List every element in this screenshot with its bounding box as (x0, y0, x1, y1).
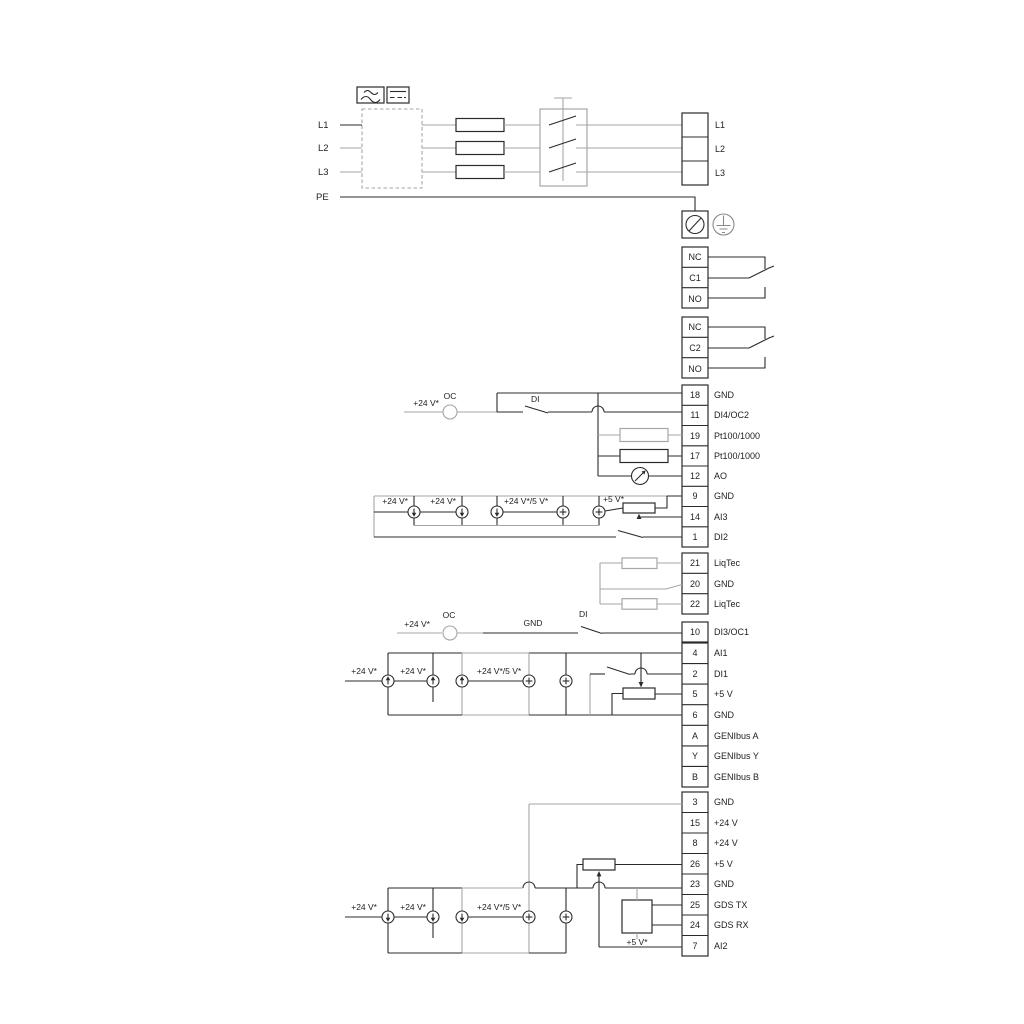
terminal-no: 10 (690, 627, 700, 637)
current-source-up-icon (427, 675, 439, 687)
wire (577, 865, 583, 889)
voltage-source-icon (557, 506, 569, 518)
relay2-block: NC C2 NO (682, 317, 774, 378)
oc-label: OC (444, 391, 457, 401)
terminal-label: GND (714, 797, 735, 807)
potentiometer-icon (623, 688, 655, 699)
terminal-label: AO (714, 471, 727, 481)
resistor-icon (620, 450, 668, 463)
v24-label: +24 V* (351, 902, 377, 912)
earth-ground-icon (713, 214, 734, 235)
relay2-c2: C2 (689, 343, 701, 353)
wiring-diagram: L1 L2 L3 PE (0, 0, 1024, 1024)
terminal-no: 4 (692, 648, 697, 658)
relay1-c1: C1 (689, 273, 701, 283)
current-source-down-icon (427, 911, 439, 923)
voltage-source-icon (560, 911, 572, 923)
current-source-down-icon (491, 506, 503, 518)
wiper-arrow-icon (597, 871, 602, 876)
voltage-source-icon (523, 911, 535, 923)
terminal-no: 22 (690, 599, 700, 609)
terminal-label: +5 V (714, 859, 733, 869)
io-strip-3: 3 GND 15 +24 V 8 +24 V 26 +5 V 23 GND 25… (682, 792, 749, 956)
terminal-no: 21 (690, 558, 700, 568)
terminal-no: 12 (690, 471, 700, 481)
current-source-down-icon (382, 911, 394, 923)
terminal-no: 9 (692, 491, 697, 501)
terminal-label: LiqTec (714, 599, 741, 609)
v24-label: +24 V* (413, 398, 439, 408)
terminal-no: 11 (690, 410, 699, 420)
oc-label: OC (443, 610, 456, 620)
terminal-no: 24 (690, 920, 700, 930)
mains-input-section: L1 L2 L3 PE (316, 87, 695, 211)
gnd-label: GND (524, 618, 543, 628)
terminal-label: DI4/OC2 (714, 410, 749, 420)
terminal-no: 5 (692, 689, 697, 699)
terminal-label: GND (714, 491, 735, 501)
terminal-label: +5 V (714, 689, 733, 699)
resistor-icon (620, 429, 668, 442)
wire (388, 653, 433, 715)
terminal-label: GND (714, 390, 735, 400)
wire-pe (340, 197, 695, 211)
terminal-label: L2 (715, 144, 725, 154)
di2-switch-blade (618, 531, 643, 538)
terminal-no: 7 (692, 941, 697, 951)
fuse-l1 (456, 119, 504, 132)
filter-box (362, 109, 422, 188)
gds-sensor-box (622, 900, 652, 933)
di-label: DI (531, 394, 540, 404)
ai1-sensor-group: +24 V* +24 V* +24 V*/5 V* (345, 653, 682, 715)
terminal-label: DI3/OC1 (714, 627, 749, 637)
wire (462, 653, 529, 715)
analog-output-meter (598, 468, 682, 485)
fuse-l2 (456, 142, 504, 155)
liqtec-sensor-wiring (600, 558, 682, 609)
terminal-no: 6 (692, 710, 697, 720)
potentiometer-icon (623, 503, 655, 513)
terminal-label: GENIbus A (714, 731, 759, 741)
voltage-source-icon (560, 675, 572, 687)
terminal-no: 25 (690, 900, 700, 910)
terminal-label: AI3 (714, 512, 728, 522)
terminal-no: 23 (690, 879, 700, 889)
gds-sensor: +5 V* (622, 888, 682, 947)
terminal-label: GDS RX (714, 920, 749, 930)
current-source-up-icon (382, 675, 394, 687)
ai3-sensor-group: +24 V* +24 V* +24 V*/5 V* +5 V* (374, 494, 682, 538)
current-source-up-icon (456, 675, 468, 687)
terminal-label: L3 (715, 168, 725, 178)
wire (388, 888, 433, 953)
terminal-label: Pt100/1000 (714, 451, 760, 461)
mains-terminal-block: L1 L2 L3 (682, 113, 725, 185)
terminal-no: 15 (690, 818, 700, 828)
voltage-source-icon (593, 506, 605, 518)
open-collector-icon (443, 626, 457, 640)
v24-label: +24 V* (400, 902, 426, 912)
terminal-no: 18 (690, 390, 700, 400)
v24-v5-label: +24 V*/5 V* (477, 902, 522, 912)
terminal-no: 2 (692, 669, 697, 679)
potentiometer-icon (583, 859, 615, 870)
terminal-no: 26 (690, 859, 700, 869)
terminal-label: +24 V (714, 838, 738, 848)
current-source-down-icon (456, 506, 468, 518)
v24-label: +24 V* (404, 619, 430, 629)
terminal-label: Pt100/1000 (714, 431, 760, 441)
fuse-l3 (456, 166, 504, 179)
pe-terminal (682, 211, 708, 238)
io-strip-2: 4 AI1 2 DI1 5 +5 V 6 GND A GENIbus A Y G… (682, 643, 759, 787)
v5-label: +5 V* (626, 937, 648, 947)
open-collector-icon (443, 405, 457, 419)
terminal-label: DI1 (714, 669, 728, 679)
terminal-label: GDS TX (714, 900, 747, 910)
wire (612, 694, 623, 716)
di3-switch-blade (581, 627, 602, 634)
relay2-no: NO (688, 364, 702, 374)
line-label-l3: L3 (318, 167, 329, 178)
relay1-nc: NC (689, 252, 702, 262)
line-label-l1: L1 (318, 120, 329, 131)
terminal-no: 14 (690, 512, 700, 522)
relay2-contact-icon (708, 327, 774, 368)
relay1-no: NO (688, 294, 702, 304)
terminal-label: AI2 (714, 941, 728, 951)
terminal-no: 20 (690, 579, 700, 589)
liqtec-block: 21 LiqTec 20 GND 22 LiqTec (600, 553, 741, 614)
v24-label: +24 V* (400, 666, 426, 676)
wire-di4 (548, 406, 682, 412)
wire (605, 508, 623, 511)
relay1-block: NC C1 NO (682, 247, 774, 308)
resistor-icon (622, 558, 657, 569)
wire-gds (652, 905, 682, 925)
terminal-no: B (692, 772, 698, 782)
di4-switch-blade (525, 406, 548, 413)
terminal-label: AI1 (714, 648, 728, 658)
wiper-arrow-icon (637, 514, 642, 519)
current-source-down-icon (456, 911, 468, 923)
v24-label: +24 V* (351, 666, 377, 676)
terminal-label: GND (714, 579, 735, 589)
di1-switch-blade (607, 667, 630, 675)
wiper-arrow-icon (639, 682, 644, 687)
ac-symbol-icon (357, 87, 384, 103)
pt100-sensor-2 (598, 450, 682, 463)
terminal-no: 17 (690, 451, 700, 461)
terminal-no: 19 (690, 431, 700, 441)
resistor-icon (622, 599, 657, 610)
relay1-contact-icon (708, 257, 774, 298)
voltage-source-icon (523, 675, 535, 687)
terminal-label: GND (714, 710, 735, 720)
terminal-label: DI2 (714, 532, 728, 542)
di-label: DI (579, 609, 588, 619)
disconnect-switch (540, 98, 587, 186)
terminal-label: LiqTec (714, 558, 741, 568)
wire (655, 496, 682, 508)
line-label-l2: L2 (318, 143, 329, 154)
v24-label: +24 V* (382, 496, 408, 506)
line-label-pe: PE (316, 192, 329, 203)
terminal-label: GND (714, 879, 735, 889)
v24-label: +24 V* (430, 496, 456, 506)
wire-di1 (630, 668, 682, 674)
io-strip-1: 18 GND 11 DI4/OC2 19 Pt100/1000 17 Pt100… (682, 385, 760, 547)
terminal-label: GENIbus B (714, 772, 759, 782)
terminal-no: 1 (692, 532, 697, 542)
v5-label: +5 V* (603, 494, 625, 504)
ai2-sensor-group: +24 V* +24 V* +24 V*/5 V* +5 V* (345, 804, 682, 953)
terminal-no: Y (692, 751, 698, 761)
relay2-nc: NC (689, 322, 702, 332)
dc-symbol-icon (387, 87, 409, 103)
terminal-label: +24 V (714, 818, 738, 828)
terminal-no: 3 (692, 797, 697, 807)
current-source-down-icon (408, 506, 420, 518)
terminal-no: A (692, 731, 698, 741)
pt100-sensor-1 (598, 429, 682, 442)
terminal-label: GENIbus Y (714, 751, 759, 761)
terminal-no: 8 (692, 838, 697, 848)
gnd-bus (523, 882, 682, 888)
terminal-label: L1 (715, 120, 725, 130)
v24-v5-label: +24 V*/5 V* (477, 666, 522, 676)
v24-v5-label: +24 V*/5 V* (504, 496, 549, 506)
